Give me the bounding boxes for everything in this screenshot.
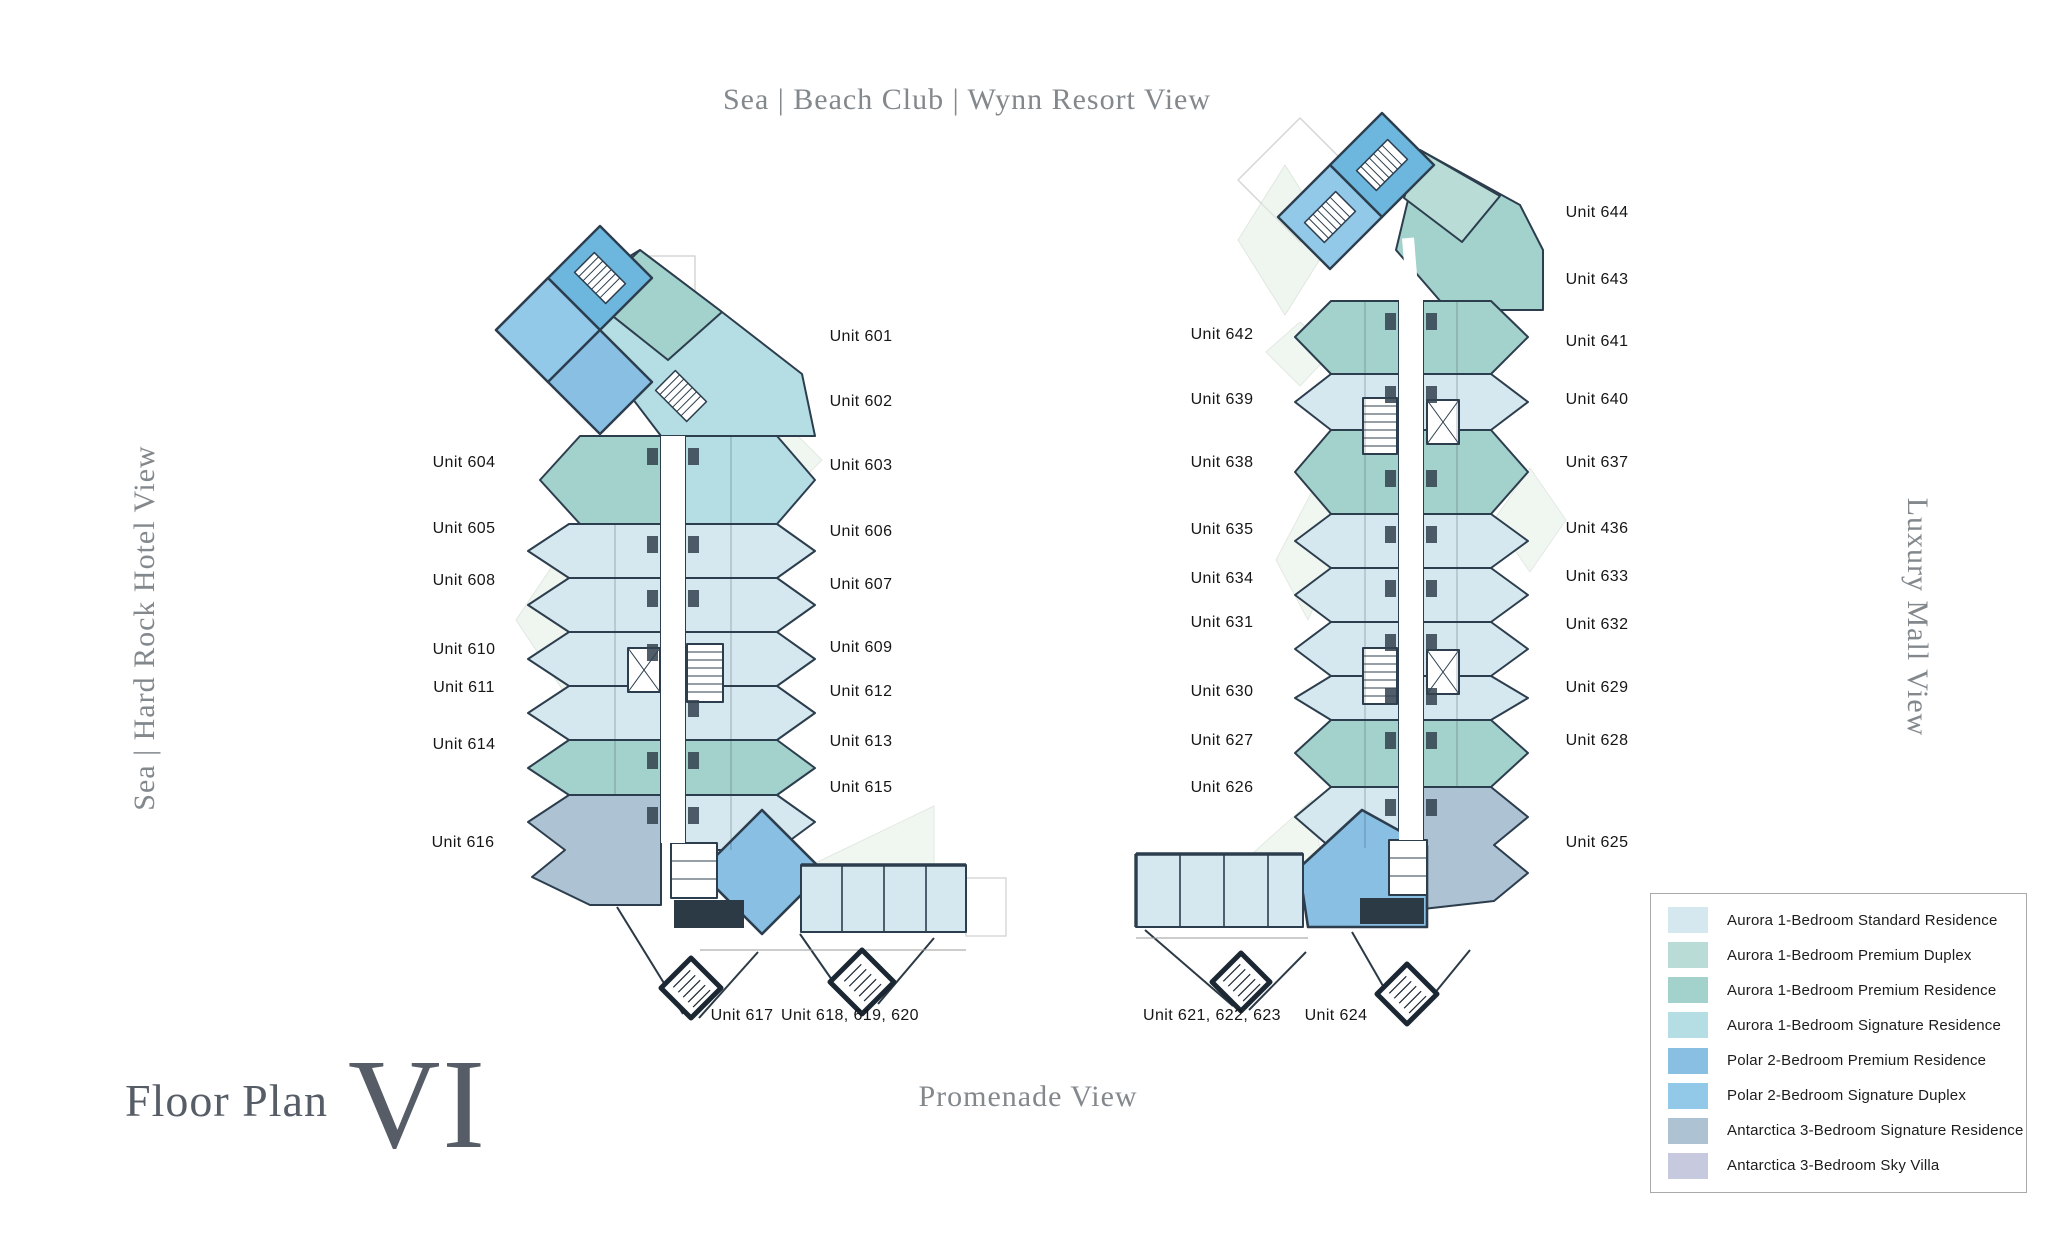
unit-label-641: Unit 641	[1566, 333, 1629, 351]
unit-label-607: Unit 607	[830, 576, 893, 594]
unit-label-618-619-620: Unit 618, 619, 620	[781, 1007, 919, 1025]
left-building-plan	[496, 226, 1006, 1018]
unit-label-642: Unit 642	[1191, 326, 1254, 344]
view-label-bottom: Promenade View	[918, 1080, 1137, 1114]
legend-swatch-polar-signature-duplex	[1668, 1083, 1708, 1109]
unit-label-644: Unit 644	[1566, 204, 1629, 222]
unit-label-631: Unit 631	[1191, 614, 1254, 632]
legend-label: Aurora 1-Bedroom Standard Residence	[1727, 912, 1997, 929]
legend-swatch-polar-premium	[1668, 1048, 1708, 1074]
unit-label-612: Unit 612	[830, 683, 893, 701]
unit-label-634: Unit 634	[1191, 570, 1254, 588]
unit-label-602: Unit 602	[830, 393, 893, 411]
legend-swatch-aurora-signature	[1668, 1012, 1708, 1038]
legend-item-antarctica-signature: Antarctica 3-Bedroom Signature Residence	[1651, 1118, 2026, 1144]
legend-item-aurora-premium-duplex: Aurora 1-Bedroom Premium Duplex	[1651, 942, 2026, 968]
view-label-left: Sea | Hard Rock Hotel View	[128, 445, 162, 810]
unit-label-609: Unit 609	[830, 639, 893, 657]
unit-label-613: Unit 613	[830, 733, 893, 751]
legend-item-aurora-standard: Aurora 1-Bedroom Standard Residence	[1651, 907, 2026, 933]
legend-label: Polar 2-Bedroom Premium Residence	[1727, 1052, 1986, 1069]
floor-plan-page: Sea | Beach Club | Wynn Resort View Sea …	[0, 0, 2058, 1240]
unit-label-632: Unit 632	[1566, 616, 1629, 634]
unit-label-633: Unit 633	[1566, 568, 1629, 586]
unit-label-611: Unit 611	[433, 679, 495, 697]
unit-label-637: Unit 637	[1566, 454, 1629, 472]
right-building-plan	[1136, 113, 1566, 1024]
legend-label: Antarctica 3-Bedroom Sky Villa	[1727, 1157, 1939, 1174]
unit-label-625: Unit 625	[1566, 834, 1629, 852]
unit-label-605: Unit 605	[433, 520, 496, 538]
legend-label: Aurora 1-Bedroom Signature Residence	[1727, 1017, 2001, 1034]
unit-label-601: Unit 601	[830, 328, 893, 346]
view-label-right: Luxury Mall View	[1900, 498, 1934, 737]
unit-label-610: Unit 610	[433, 641, 496, 659]
legend-swatch-aurora-premium-residence	[1668, 977, 1708, 1003]
floor-plan-title-text: Floor Plan	[125, 1074, 328, 1127]
unit-label-604: Unit 604	[433, 454, 496, 472]
legend-item-polar-signature-duplex: Polar 2-Bedroom Signature Duplex	[1651, 1083, 2026, 1109]
unit-label-436: Unit 436	[1566, 520, 1629, 538]
view-label-top: Sea | Beach Club | Wynn Resort View	[723, 83, 1211, 117]
unit-label-638: Unit 638	[1191, 454, 1254, 472]
unit-label-627: Unit 627	[1191, 732, 1254, 750]
unit-label-603: Unit 603	[830, 457, 893, 475]
floor-plan-numeral: VI	[348, 1040, 487, 1168]
legend-item-aurora-signature: Aurora 1-Bedroom Signature Residence	[1651, 1012, 2026, 1038]
unit-label-626: Unit 626	[1191, 779, 1254, 797]
unit-label-643: Unit 643	[1566, 271, 1629, 289]
unit-label-608: Unit 608	[433, 572, 496, 590]
legend-swatch-aurora-standard	[1668, 907, 1708, 933]
unit-label-616: Unit 616	[432, 834, 495, 852]
unit-label-635: Unit 635	[1191, 521, 1254, 539]
unit-label-606: Unit 606	[830, 523, 893, 541]
unit-label-629: Unit 629	[1566, 679, 1629, 697]
legend-swatch-antarctica-sky-villa	[1668, 1153, 1708, 1179]
legend: Aurora 1-Bedroom Standard Residence Auro…	[1650, 893, 2027, 1193]
unit-label-614: Unit 614	[433, 736, 496, 754]
legend-label: Antarctica 3-Bedroom Signature Residence	[1727, 1122, 2024, 1139]
unit-label-630: Unit 630	[1191, 683, 1254, 701]
legend-item-antarctica-sky-villa: Antarctica 3-Bedroom Sky Villa	[1651, 1153, 2026, 1179]
legend-swatch-aurora-premium-duplex	[1668, 942, 1708, 968]
unit-label-640: Unit 640	[1566, 391, 1629, 409]
unit-label-617: Unit 617	[711, 1007, 774, 1025]
legend-label: Polar 2-Bedroom Signature Duplex	[1727, 1087, 1966, 1104]
unit-label-628: Unit 628	[1566, 732, 1629, 750]
unit-label-621-622-623: Unit 621, 622, 623	[1143, 1007, 1281, 1025]
legend-label: Aurora 1-Bedroom Premium Residence	[1727, 982, 1996, 999]
floor-plan-title: Floor Plan VI	[125, 1040, 487, 1168]
unit-label-615: Unit 615	[830, 779, 893, 797]
legend-swatch-antarctica-signature	[1668, 1118, 1708, 1144]
unit-label-639: Unit 639	[1191, 391, 1254, 409]
legend-item-aurora-premium-residence: Aurora 1-Bedroom Premium Residence	[1651, 977, 2026, 1003]
legend-label: Aurora 1-Bedroom Premium Duplex	[1727, 947, 1972, 964]
unit-label-624: Unit 624	[1305, 1007, 1368, 1025]
legend-item-polar-premium: Polar 2-Bedroom Premium Residence	[1651, 1048, 2026, 1074]
